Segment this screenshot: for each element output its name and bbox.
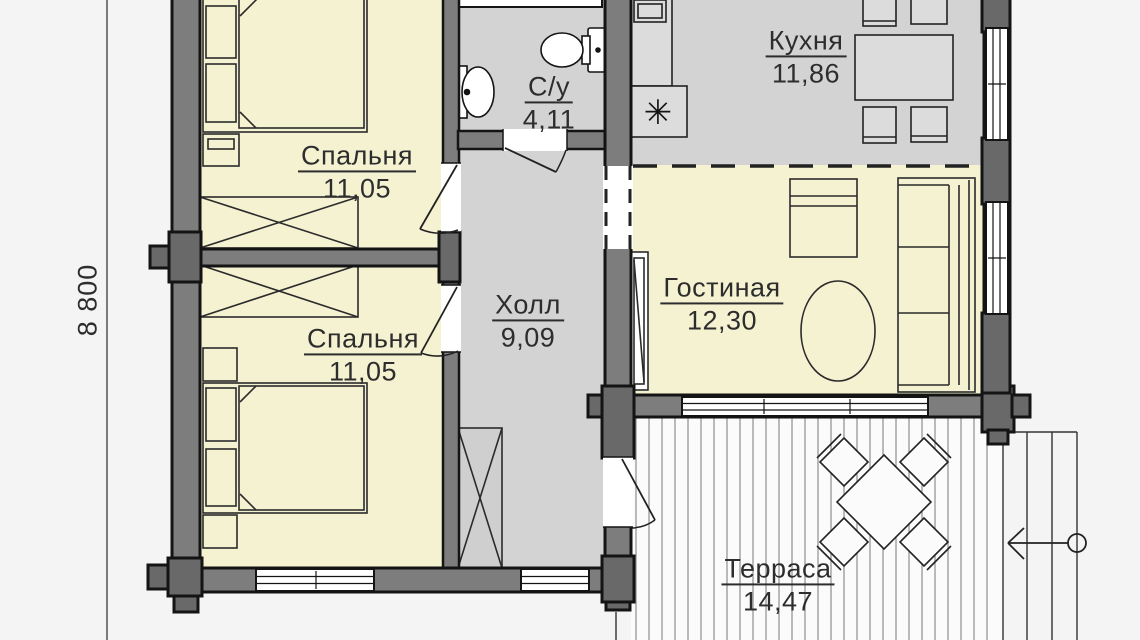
passage-hall-living xyxy=(603,166,633,249)
floor-plan: ✳ Спальня 11,05 С/у 4,11 Кухня 11,86 Хол… xyxy=(0,0,1140,640)
room-name: Терраса xyxy=(721,554,834,585)
room-area: 11,05 xyxy=(298,175,416,203)
tv-unit xyxy=(630,252,648,390)
wardrobe-bedroom-top xyxy=(200,197,358,248)
window-kitchen-right xyxy=(986,28,1008,140)
bed-top xyxy=(203,0,367,132)
nightstand-bottom-1 xyxy=(203,348,237,381)
armchair xyxy=(790,179,857,257)
window-living-right xyxy=(986,202,1008,314)
wall-bedrooms-hall xyxy=(443,0,459,568)
wardrobe-hall xyxy=(458,428,502,568)
wardrobe-bedroom-bottom xyxy=(200,265,358,317)
room-area: 11,86 xyxy=(766,60,847,88)
room-label-bedroom-top: Спальня 11,05 xyxy=(298,141,416,202)
window-living-bottom xyxy=(682,397,928,416)
nightstand-bottom-2 xyxy=(203,515,237,548)
room-name: Гостиная xyxy=(660,273,783,304)
room-label-living: Гостиная 12,30 xyxy=(660,273,783,334)
bathtub-edge xyxy=(456,0,602,7)
dimension-label: 8 800 xyxy=(73,264,104,337)
sofa xyxy=(898,178,975,392)
coffee-table xyxy=(801,281,875,381)
room-area: 11,05 xyxy=(304,358,422,386)
room-name: С/у xyxy=(525,72,573,103)
room-label-bathroom: С/у 4,11 xyxy=(523,72,576,133)
room-name: Холл xyxy=(492,290,564,321)
room-area: 9,09 xyxy=(492,324,564,352)
nightstand-top xyxy=(203,134,239,166)
room-name: Спальня xyxy=(298,141,416,172)
terrace-table-set xyxy=(817,434,951,570)
room-area: 14,47 xyxy=(721,588,834,616)
bed-bottom xyxy=(203,383,367,513)
kitchen-counter xyxy=(630,0,672,86)
room-label-bedroom-bottom: Спальня 11,05 xyxy=(304,324,422,385)
window-bedroom-bottom xyxy=(256,569,374,591)
stove-icon: ✳ xyxy=(644,93,673,133)
room-name: Кухня xyxy=(766,26,847,57)
wall-left xyxy=(172,0,200,592)
room-area: 12,30 xyxy=(660,307,783,335)
room-label-kitchen: Кухня 11,86 xyxy=(766,26,847,87)
terrace-steps xyxy=(1003,432,1077,640)
washbasin xyxy=(458,66,494,118)
room-label-terrace: Терраса 14,47 xyxy=(721,554,834,615)
room-area: 4,11 xyxy=(523,106,576,134)
room-name: Спальня xyxy=(304,324,422,355)
room-label-hall: Холл 9,09 xyxy=(492,290,564,351)
window-hall-bottom xyxy=(521,569,589,591)
entrance-arrow xyxy=(1008,528,1086,559)
wall-bedroom-divider xyxy=(170,249,458,266)
